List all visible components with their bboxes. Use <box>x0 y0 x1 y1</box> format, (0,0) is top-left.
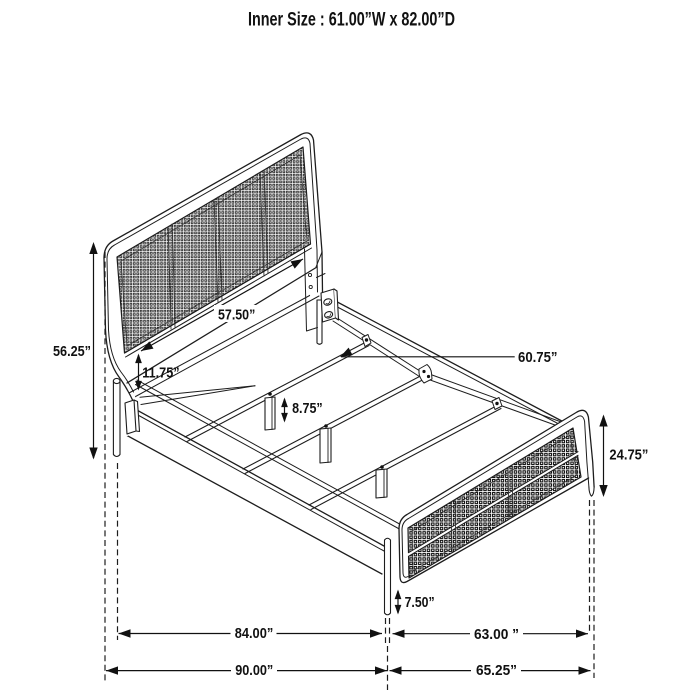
svg-text:57.50”: 57.50” <box>218 308 255 324</box>
svg-text:8.75”: 8.75” <box>292 401 323 417</box>
svg-text:56.25”: 56.25” <box>53 344 91 360</box>
svg-text:90.00”: 90.00” <box>235 663 273 679</box>
svg-text:Inner Size : 61.00”W x 82.00”D: Inner Size : 61.00”W x 82.00”D <box>248 10 455 31</box>
svg-text:65.25”: 65.25” <box>476 663 517 679</box>
svg-text:63.00 ”: 63.00 ” <box>474 627 519 643</box>
svg-text:7.50”: 7.50” <box>405 595 435 611</box>
svg-text:60.75”: 60.75” <box>518 350 558 366</box>
svg-text:11.75”: 11.75” <box>142 365 179 381</box>
svg-text:84.00”: 84.00” <box>235 626 274 642</box>
svg-text:24.75”: 24.75” <box>609 448 648 464</box>
